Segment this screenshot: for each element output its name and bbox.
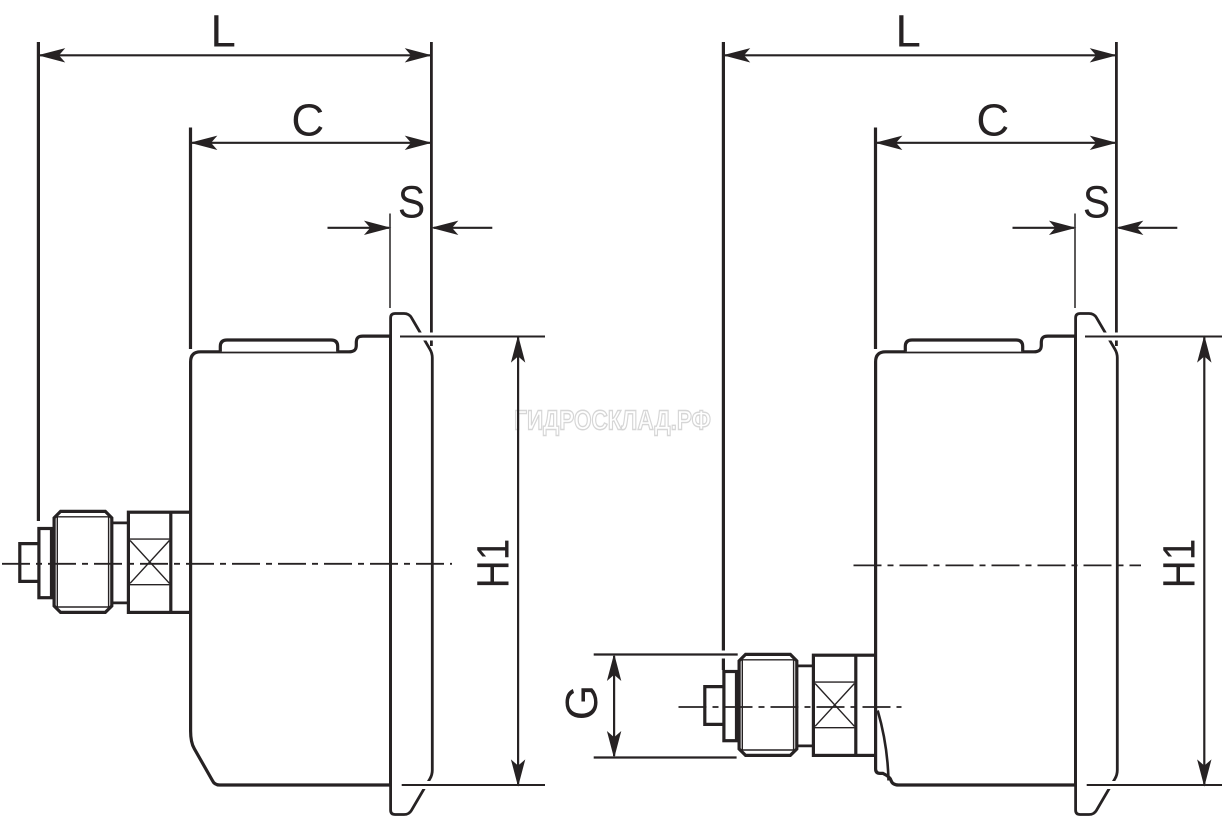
svg-text:L: L	[211, 6, 236, 57]
svg-text:G: G	[556, 685, 607, 720]
svg-text:H1: H1	[1154, 539, 1205, 588]
svg-text:S: S	[1083, 178, 1110, 228]
svg-text:ГИДРОСКЛАД.РФ: ГИДРОСКЛАД.РФ	[514, 405, 711, 436]
svg-text:C: C	[291, 95, 324, 146]
svg-text:L: L	[896, 6, 921, 57]
svg-text:C: C	[976, 95, 1009, 146]
svg-text:H1: H1	[468, 539, 519, 588]
svg-text:S: S	[398, 178, 425, 228]
